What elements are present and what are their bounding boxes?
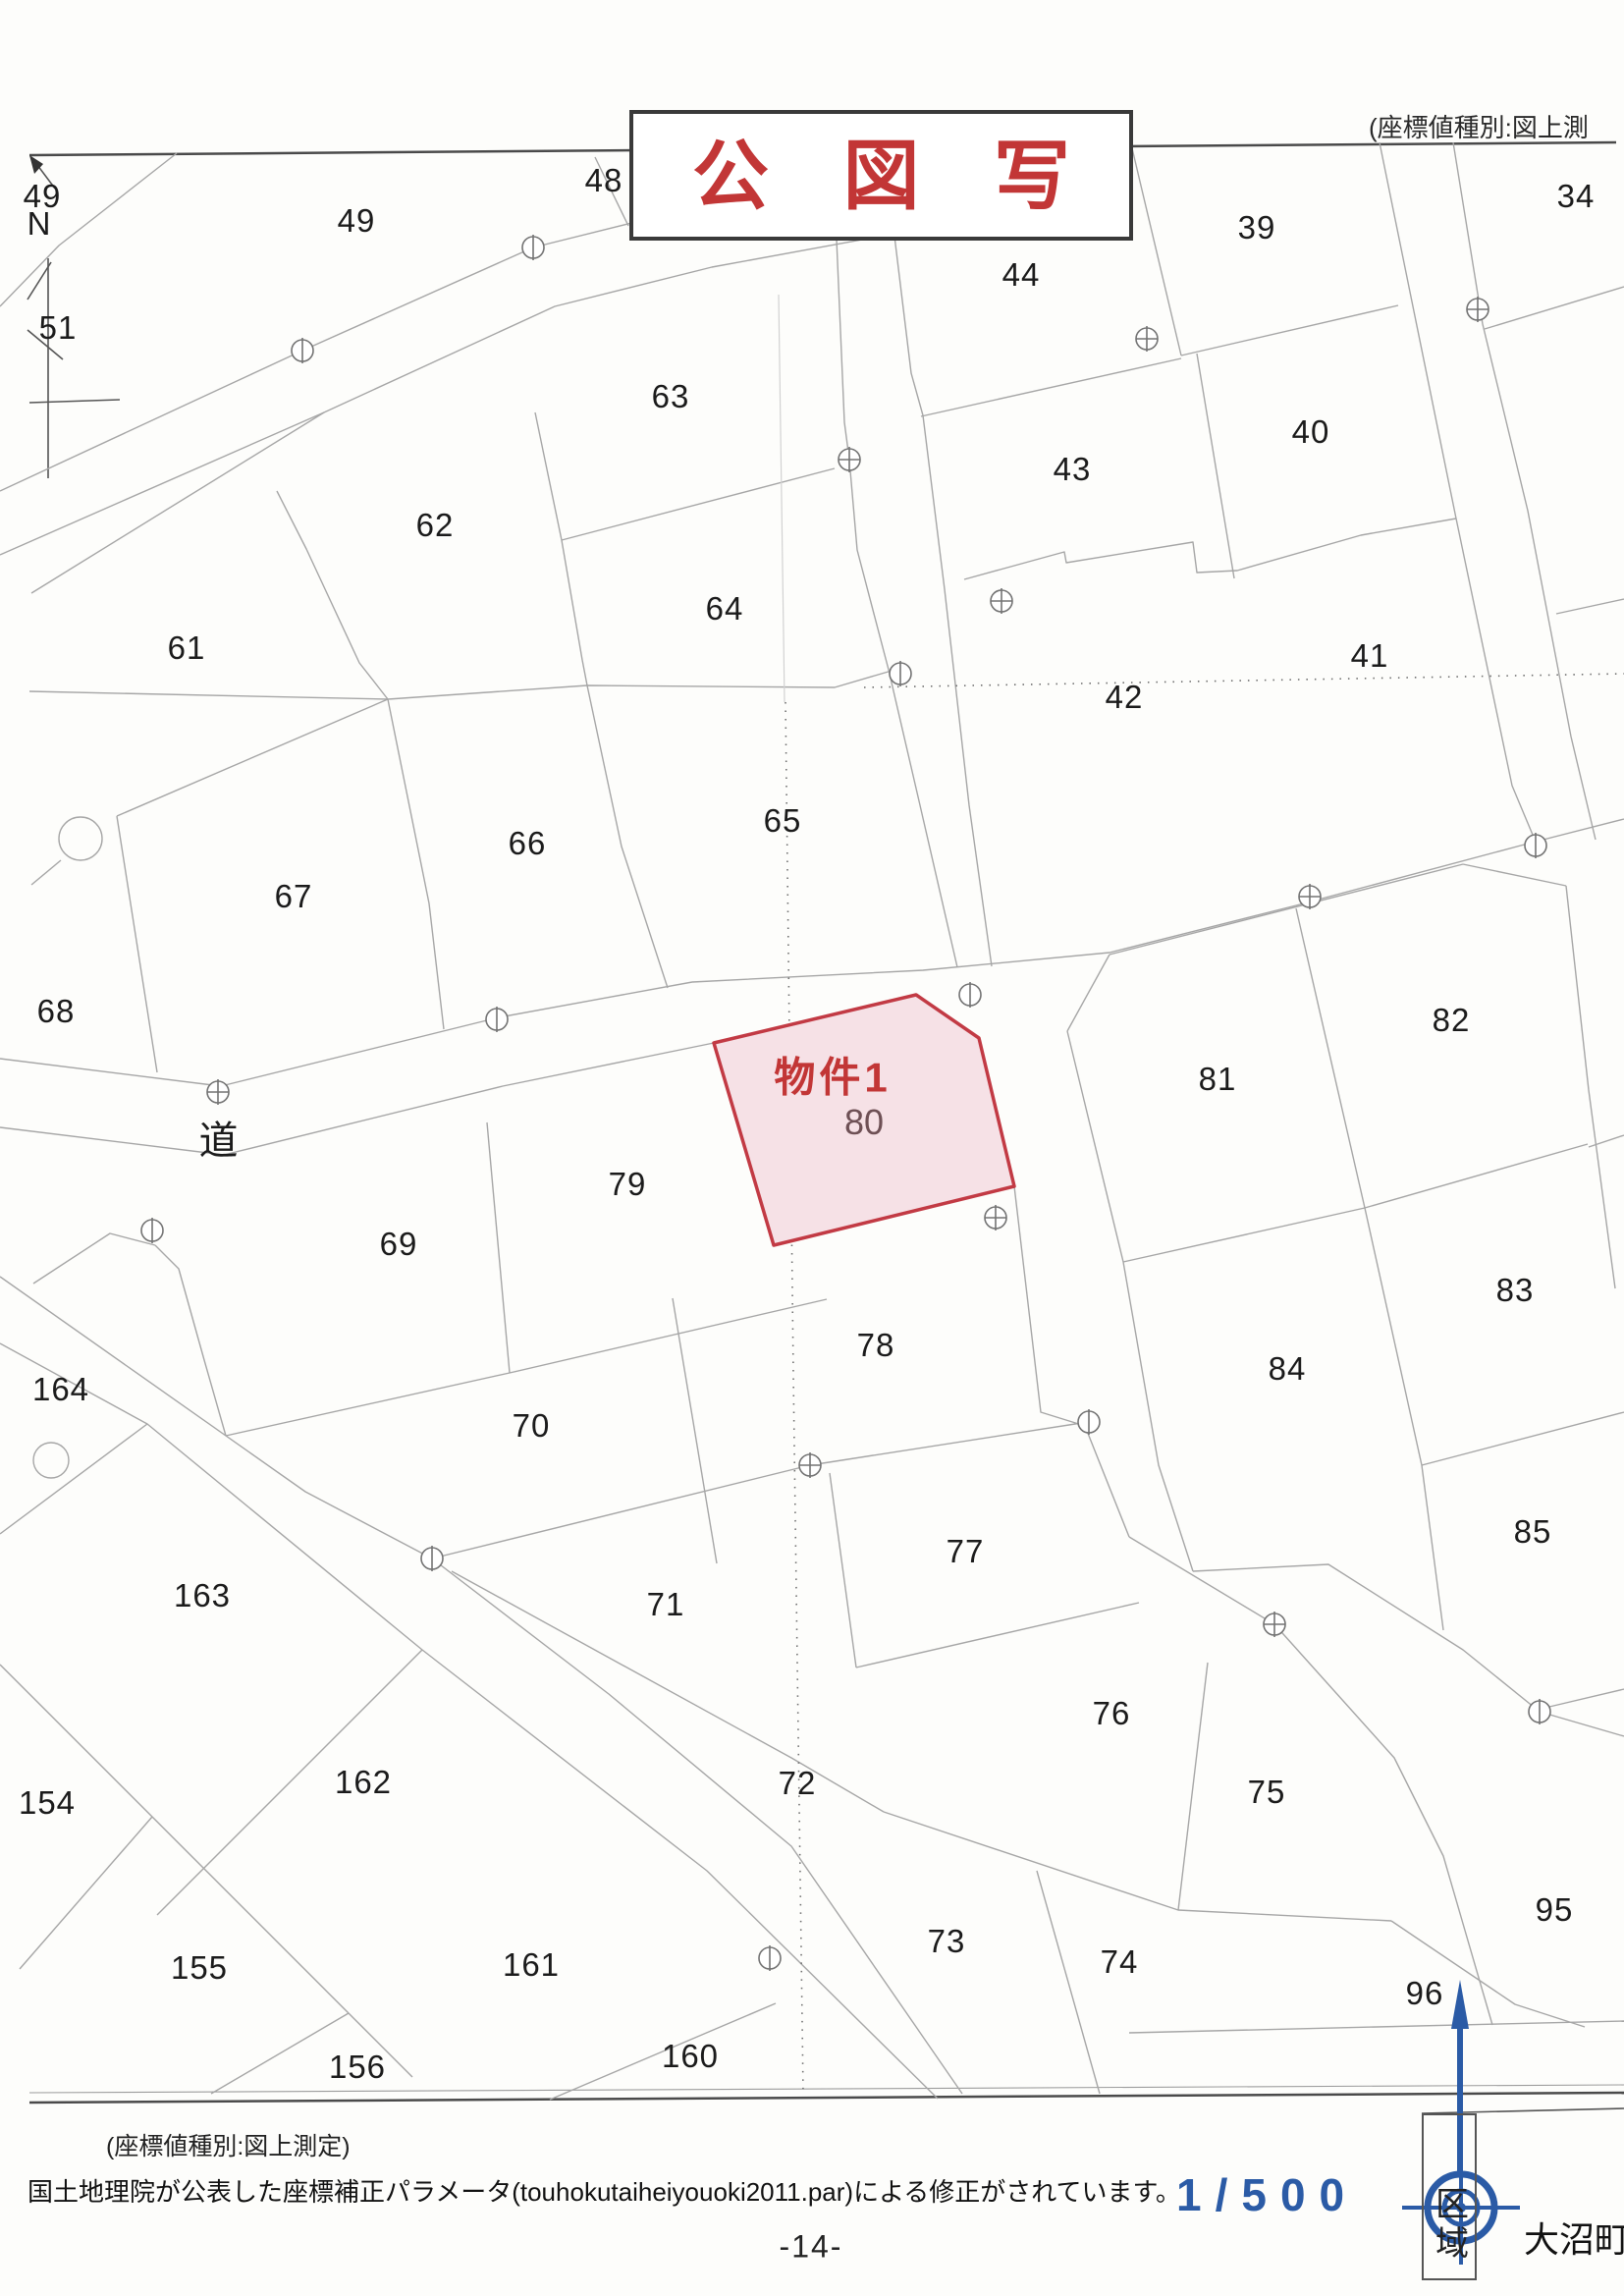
- parcel-label: 79: [609, 1166, 647, 1203]
- parcel-label: 51: [39, 309, 78, 347]
- map-bottom-border: [29, 2093, 1624, 2103]
- map-scale: 1/500: [1176, 2168, 1358, 2221]
- title-stamp-box: 公 図 写: [629, 110, 1133, 241]
- parcel-label: 70: [513, 1407, 551, 1445]
- property-parcel-number: 80: [844, 1102, 884, 1143]
- boundary-point-icon: [1525, 833, 1546, 858]
- parcel-label: 154: [19, 1784, 76, 1822]
- parcel-label: 61: [168, 629, 206, 667]
- parcel-label: 95: [1536, 1891, 1574, 1929]
- title-char-2: 図: [842, 137, 919, 214]
- parcel-label: N: [27, 205, 52, 243]
- parcel-label: 68: [37, 993, 76, 1030]
- parcel-label: 71: [647, 1586, 685, 1623]
- dotted-line-horizontal: [864, 674, 1624, 687]
- parcel-label: 41: [1351, 637, 1389, 675]
- parcel-label: 62: [416, 507, 455, 544]
- correction-parameter-note: 国土地理院が公表した座標補正パラメータ(touhokutaiheiyouoki2…: [27, 2172, 1181, 2209]
- parcel-label: 160: [662, 2038, 719, 2075]
- survey-cross-icon: [985, 1205, 1006, 1230]
- parcel-label: 65: [764, 802, 802, 840]
- parcel-label: 78: [857, 1327, 895, 1364]
- parcel-label: 66: [509, 825, 547, 862]
- title-char-3: 写: [994, 137, 1070, 214]
- parcel-label: 43: [1054, 451, 1092, 488]
- parcel-label: 49: [338, 202, 376, 240]
- boundary-point-icon: [421, 1546, 443, 1571]
- parcel-label: 163: [174, 1577, 231, 1614]
- boundary-point-icon: [522, 235, 544, 260]
- parcel-label: 34: [1557, 178, 1596, 215]
- road-label: 道: [199, 1109, 240, 1166]
- boundary-point-icon: [1529, 1699, 1550, 1724]
- cadastral-map-svg: [0, 0, 1624, 2296]
- parcel-label: 162: [335, 1764, 392, 1801]
- survey-cross-icon: [991, 588, 1012, 614]
- survey-cross-icon: [207, 1079, 229, 1105]
- survey-cross-icon: [1467, 297, 1489, 322]
- parcel-label: 75: [1248, 1774, 1286, 1811]
- survey-cross-icon: [799, 1452, 821, 1478]
- parcel-label: 72: [779, 1765, 817, 1802]
- boundary-point-icon: [141, 1218, 163, 1243]
- parcel-label: 63: [652, 378, 690, 415]
- parcel-label: 83: [1496, 1272, 1535, 1309]
- title-char-1: 公: [692, 137, 769, 214]
- cadastral-map-page: 49N5149486344393440436261644241656667688…: [0, 0, 1624, 2296]
- parcel-label: 44: [1002, 256, 1041, 294]
- parcel-label: 48: [585, 162, 623, 199]
- property-label: 物件1: [774, 1045, 891, 1105]
- parcel-label: 74: [1101, 1943, 1139, 1981]
- survey-cross-icon: [839, 447, 860, 472]
- parcel-label: 73: [928, 1923, 966, 1960]
- boundary-point-icon: [292, 338, 313, 363]
- boundary-point-icon: [1078, 1409, 1100, 1435]
- parcel-label: 40: [1292, 413, 1330, 451]
- boundary-point-icon: [890, 661, 911, 686]
- boundary-point-icon: [759, 1945, 781, 1971]
- district-stamp-box: 区域: [1422, 2113, 1477, 2280]
- parcel-label: 85: [1514, 1513, 1552, 1551]
- parcel-label: 42: [1106, 679, 1144, 716]
- town-name: 大沼町: [1524, 2212, 1624, 2263]
- map-bottom-border-thin: [29, 2085, 1624, 2093]
- district-stamp-text: 区域: [1426, 2186, 1474, 2265]
- parcel-label: 39: [1238, 209, 1276, 246]
- parcel-label: 84: [1269, 1350, 1307, 1388]
- boundary-point-icon: [959, 982, 981, 1008]
- parcel-label: 76: [1093, 1695, 1131, 1732]
- dotted-line-vertical: [785, 702, 803, 2094]
- coordinate-type-note-top: (座標値種別:図上測: [1369, 108, 1589, 144]
- parcel-label: 164: [32, 1371, 89, 1408]
- parcel-label: 67: [275, 878, 313, 915]
- parcel-label: 156: [329, 2049, 386, 2086]
- coordinate-type-note-bottom: (座標値種別:図上測定): [106, 2127, 351, 2162]
- parcel-label: 161: [503, 1946, 560, 1984]
- parcel-label: 69: [380, 1226, 418, 1263]
- boundary-point-icon: [486, 1007, 508, 1032]
- survey-cross-icon: [1136, 326, 1158, 352]
- parcel-label: 155: [171, 1949, 228, 1987]
- parcel-label: 64: [706, 590, 744, 628]
- parcel-label: 77: [947, 1533, 985, 1570]
- parcel-label: 96: [1406, 1975, 1444, 2012]
- page-number: -14-: [780, 2229, 843, 2266]
- parcel-label: 82: [1433, 1002, 1471, 1039]
- parcel-label: 81: [1199, 1061, 1237, 1098]
